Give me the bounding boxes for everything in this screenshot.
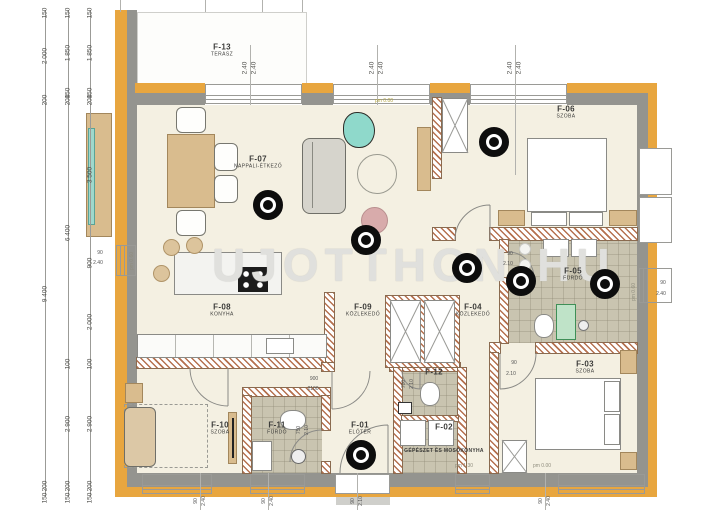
wall-f06-south-1 bbox=[433, 228, 455, 240]
wall-top-outer-2 bbox=[302, 83, 333, 93]
bar-stool-2 bbox=[186, 237, 203, 254]
bed-f03-pillow-1 bbox=[604, 381, 620, 412]
dimension-value-2-3: 200 bbox=[87, 95, 94, 106]
wall-f10-f11 bbox=[243, 396, 251, 473]
room-label-f-03: F-03SZOBA bbox=[576, 360, 595, 375]
shaft-f06 bbox=[442, 98, 468, 153]
bar-stool-3 bbox=[153, 265, 170, 282]
opening-height-label-1b: 2.40 bbox=[378, 62, 385, 75]
shaft-f03 bbox=[502, 440, 527, 473]
bedroom-f10-window bbox=[142, 474, 212, 494]
bar-stool-1 bbox=[163, 239, 180, 256]
nightstand-f03-top bbox=[620, 350, 637, 374]
shower-f11 bbox=[291, 449, 306, 464]
spec-label-9: 2100 bbox=[307, 386, 318, 392]
sill-label-1a: 90 bbox=[261, 498, 267, 504]
viewpoint-marker-5[interactable] bbox=[506, 266, 536, 296]
wall-living-f04 bbox=[433, 98, 441, 178]
dimension-value-1-3: 200 bbox=[65, 95, 72, 106]
wall-kitchen-south bbox=[137, 358, 325, 368]
viewpoint-marker-6[interactable] bbox=[590, 269, 620, 299]
wall-f05-f03-a bbox=[490, 343, 500, 353]
bed-f10 bbox=[124, 407, 156, 467]
bedroom-f06-window-top bbox=[470, 84, 567, 104]
drain-f05 bbox=[578, 320, 589, 331]
opening-height-label-2a: 2.40 bbox=[507, 62, 514, 75]
shaft-corridor-1 bbox=[390, 300, 421, 363]
wall-f11-right-2 bbox=[322, 462, 330, 473]
wardrobe-f10 bbox=[125, 383, 143, 403]
spec-label-13: 2.10 bbox=[304, 425, 310, 435]
sill-label-2b: 2.10 bbox=[358, 496, 364, 506]
dimension-value-0-0: 150 bbox=[42, 8, 49, 19]
wall-top-outer-4 bbox=[567, 83, 657, 93]
terrace-sliding-door bbox=[205, 84, 302, 104]
spec-label-7: 2.10 bbox=[506, 371, 516, 377]
dimension-value-2-7: 100 bbox=[87, 359, 94, 370]
witness-top-2 bbox=[377, 45, 378, 105]
dimension-value-0-4: 200 bbox=[42, 481, 49, 492]
nightstand-f06-right bbox=[609, 210, 637, 226]
dim-line-1 bbox=[45, 10, 46, 497]
bed-f03-pillow-2 bbox=[604, 414, 620, 445]
kitchen-counter bbox=[137, 334, 327, 358]
room-label-f-05: F-05FÜRDŐ bbox=[563, 267, 583, 282]
wall-top-inner-4 bbox=[567, 93, 647, 105]
viewpoint-marker-3[interactable] bbox=[479, 127, 509, 157]
viewpoint-marker-7[interactable] bbox=[346, 440, 376, 470]
dimension-value-2-8: 2 900 bbox=[87, 416, 94, 432]
room-label-f-06: F-06SZOBA bbox=[557, 105, 576, 120]
dimension-value-2-4: 3 500 bbox=[87, 167, 94, 183]
sofa-cushion-line bbox=[312, 142, 313, 208]
room-label-f-07: F-07NAPPALI-ÉTKEZŐ bbox=[234, 155, 282, 170]
bed-f06 bbox=[527, 138, 607, 212]
room-label-f-09: F-09KÖZLEKEDŐ bbox=[346, 303, 380, 318]
spec-label-2: 90 bbox=[660, 280, 666, 286]
wall-f12-right bbox=[458, 368, 466, 473]
sill-label-3a: 90 bbox=[538, 498, 544, 504]
dining-chair-2 bbox=[176, 210, 206, 236]
dimension-value-0-3: 9 400 bbox=[42, 286, 49, 302]
witness-tick-3 bbox=[262, 0, 263, 12]
dimension-value-1-5: 100 bbox=[65, 359, 72, 370]
spec-label-8: 900 bbox=[310, 376, 318, 382]
opening-height-label-0b: 2.40 bbox=[251, 62, 258, 75]
toilet-f12 bbox=[420, 382, 440, 406]
room-label-f-04: F-04KÖZLEKEDŐ bbox=[456, 303, 490, 318]
opening-height-label-1a: 2.40 bbox=[369, 62, 376, 75]
sink-f05-2 bbox=[571, 239, 597, 257]
nightstand-f03-bottom bbox=[620, 452, 637, 470]
wardrobe-f04 bbox=[417, 127, 431, 191]
dining-chair-4 bbox=[214, 175, 238, 203]
witness-tick-4 bbox=[302, 0, 303, 12]
dimension-value-1-6: 2 900 bbox=[65, 416, 72, 432]
sill-label-3b: 2.40 bbox=[546, 496, 552, 506]
spec-label-0: 90 bbox=[97, 250, 103, 256]
wall-f01-top bbox=[322, 363, 334, 371]
bathroom-f05-window-right bbox=[639, 268, 672, 303]
room-name-f02: GÉPÉSZET ÉS MOSÓKONYHA bbox=[404, 448, 484, 454]
dimension-value-2-9: 200 bbox=[87, 481, 94, 492]
sofa bbox=[302, 138, 346, 214]
witness-top-1 bbox=[250, 45, 251, 105]
sink-f05-1 bbox=[543, 239, 569, 257]
bathroom-f11-window bbox=[250, 474, 305, 494]
dimension-value-1-1: 1 850 bbox=[65, 45, 72, 61]
room-label-f-10: F-10SZOBA bbox=[211, 421, 230, 436]
nightstand-f06-left bbox=[498, 210, 525, 226]
dimension-value-2-1: 1 850 bbox=[87, 45, 94, 61]
witness-tick-2 bbox=[205, 0, 206, 12]
armchair bbox=[343, 112, 375, 148]
spec-label-12: 750 bbox=[296, 426, 302, 434]
cooktop bbox=[238, 267, 268, 292]
sill-label-0a: 90 bbox=[193, 498, 199, 504]
shaft-corridor-2 bbox=[424, 300, 455, 363]
sill-label-0b: 2.40 bbox=[201, 496, 207, 506]
opening-height-label-0a: 2.40 bbox=[242, 62, 249, 75]
bedroom-f06-window-right-1 bbox=[639, 148, 672, 195]
room-label-f-12: F-12 bbox=[425, 368, 443, 377]
room-label-f-08: F-08KONYHA bbox=[210, 303, 234, 318]
wall-top-outer-3 bbox=[430, 83, 470, 93]
dimension-value-0-2: 200 bbox=[42, 95, 49, 106]
level-label-2: pm 0.00 bbox=[533, 463, 551, 469]
dimension-value-1-8: 150 bbox=[65, 493, 72, 504]
dimension-value-1-7: 200 bbox=[65, 481, 72, 492]
level-label-1: pm 1.30 bbox=[455, 463, 473, 469]
room-label-f-01: F-01ELŐTÉR bbox=[349, 421, 371, 436]
sill-label-2a: 90 bbox=[350, 498, 356, 504]
viewpoint-marker-4[interactable] bbox=[452, 253, 482, 283]
room-label-f-11: F-11FÜRDŐ bbox=[267, 421, 287, 436]
utility-f02-window bbox=[455, 474, 490, 494]
wall-f11-right bbox=[322, 396, 330, 430]
dimension-value-2-10: 150 bbox=[87, 493, 94, 504]
viewpoint-marker-2[interactable] bbox=[351, 225, 381, 255]
wall-top-inner-2 bbox=[302, 93, 333, 105]
spec-label-1: 2.40 bbox=[93, 260, 103, 266]
bed-f06-pillow-2 bbox=[569, 212, 603, 226]
dining-chair-1 bbox=[176, 107, 206, 133]
spec-label-10: 700 bbox=[401, 380, 407, 388]
spec-label-3: 2.40 bbox=[656, 291, 666, 297]
wall-top-outer-1 bbox=[135, 83, 205, 93]
level-label-4: pm 0.60 bbox=[631, 283, 637, 301]
kitchen-sink bbox=[266, 338, 294, 354]
entrance-door-opening bbox=[335, 474, 390, 494]
bed-f06-pillow-1 bbox=[531, 212, 567, 226]
level-label-0: pm 0.00 bbox=[375, 98, 393, 104]
bedroom-f03-window bbox=[558, 474, 645, 494]
wall-top-inner-1 bbox=[137, 93, 205, 105]
dimension-value-1-0: 150 bbox=[65, 8, 72, 19]
level-label-3: pm 0.60 bbox=[129, 252, 135, 270]
witness-tick-1 bbox=[120, 0, 121, 12]
wall-f03-left bbox=[490, 353, 498, 473]
spec-label-6: 90 bbox=[511, 360, 517, 366]
dimension-value-0-1: 2 000 bbox=[42, 48, 49, 64]
coffee-table bbox=[357, 154, 397, 194]
spec-label-5: 2.10 bbox=[503, 261, 513, 267]
sill-label-1b: 2.40 bbox=[269, 496, 275, 506]
cabinet-f05 bbox=[556, 304, 576, 340]
dimension-value-2-0: 150 bbox=[87, 8, 94, 19]
toilet-f05 bbox=[534, 314, 554, 338]
dimension-value-2-6: 2 000 bbox=[87, 314, 94, 330]
tv-f10 bbox=[232, 418, 234, 458]
washer-f02 bbox=[400, 420, 426, 446]
opening-height-label-2b: 2.40 bbox=[516, 62, 523, 75]
washbasin-f11 bbox=[252, 441, 272, 471]
room-label-f-13: F-13TERASZ bbox=[211, 43, 233, 58]
dimension-value-1-4: 6 400 bbox=[65, 225, 72, 241]
dining-table bbox=[167, 134, 215, 208]
viewpoint-marker-1[interactable] bbox=[253, 190, 283, 220]
floor-plan-canvas: UJOTTHON HU GÉPÉSZET ÉS MOSÓKONYHA F-13T… bbox=[0, 0, 720, 510]
bedroom-f06-window-right-2 bbox=[639, 197, 672, 243]
spec-label-4: 90 bbox=[507, 251, 513, 257]
spec-label-11: 2.10 bbox=[409, 379, 415, 389]
dimension-value-0-5: 150 bbox=[42, 493, 49, 504]
sink-f12 bbox=[398, 402, 412, 414]
room-label-f-02: F-02 bbox=[435, 423, 453, 432]
